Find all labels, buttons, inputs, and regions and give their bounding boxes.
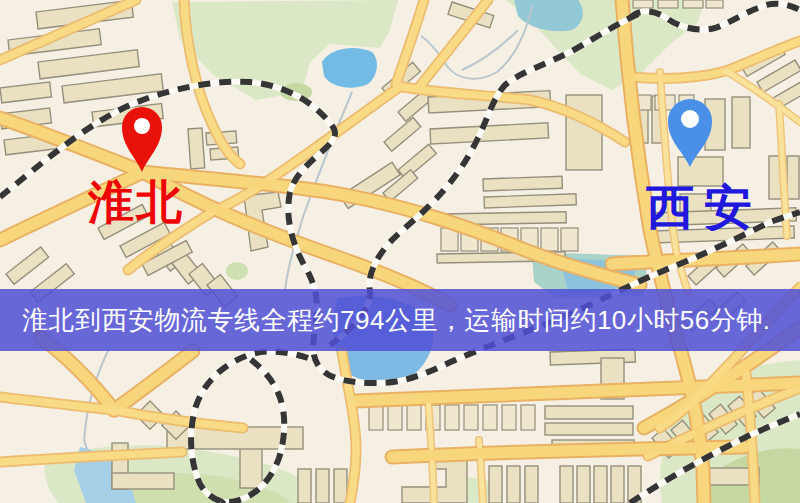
marker-label-huaibei: 淮北: [87, 176, 184, 228]
pin-hole: [681, 110, 699, 128]
map-canvas[interactable]: 淮北 西安: [0, 0, 800, 503]
route-info-text: 淮北到西安物流专线全程约794公里，运输时间约10小时56分钟.: [22, 305, 770, 335]
pin-hole: [134, 118, 150, 134]
map-screenshot: 淮北 西安 淮北到西安物流专线全程约794公里，运输时间约10小时56分钟.: [0, 0, 800, 503]
route-info-banner: 淮北到西安物流专线全程约794公里，运输时间约10小时56分钟.: [0, 289, 800, 351]
marker-label-xian: 西安: [646, 181, 762, 234]
